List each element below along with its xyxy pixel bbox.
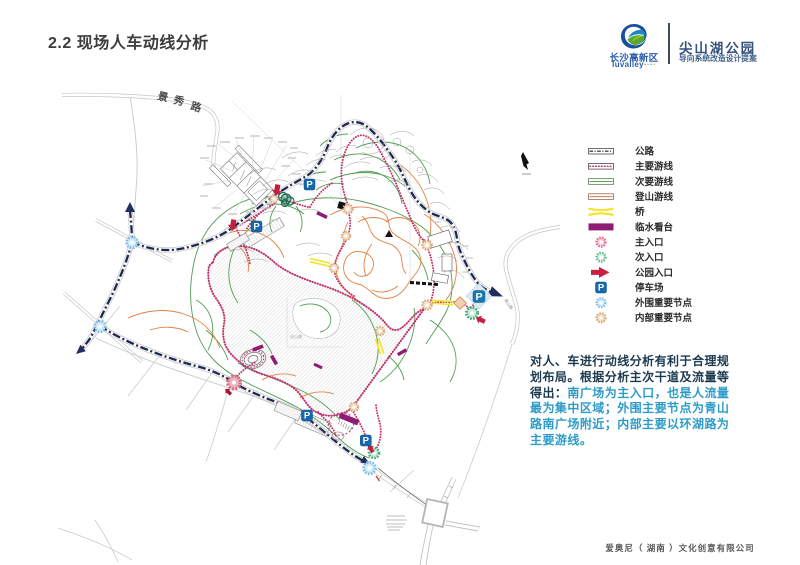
svg-text:主入口: 主入口 xyxy=(635,237,664,249)
svg-text:内部重要节点: 内部重要节点 xyxy=(635,312,693,324)
svg-text:外围重要节点: 外围重要节点 xyxy=(634,297,693,309)
svg-text:P: P xyxy=(598,283,605,294)
svg-text:P: P xyxy=(304,411,311,422)
svg-text:P: P xyxy=(306,180,313,191)
svg-text:秀: 秀 xyxy=(171,93,186,109)
svg-text:次要游线: 次要游线 xyxy=(635,176,674,188)
svg-text:公园入口: 公园入口 xyxy=(635,268,673,279)
svg-text:登山游线: 登山游线 xyxy=(634,191,674,203)
svg-text:公路: 公路 xyxy=(635,146,655,158)
svg-text:主要游线: 主要游线 xyxy=(635,161,674,173)
svg-text:P: P xyxy=(363,436,370,447)
svg-text:停车场: 停车场 xyxy=(635,282,664,294)
svg-text:路: 路 xyxy=(189,99,203,115)
svg-text:临水看台: 临水看台 xyxy=(635,221,674,233)
svg-text:P: P xyxy=(475,291,482,303)
svg-text:桥: 桥 xyxy=(635,206,645,218)
svg-text:次入口: 次入口 xyxy=(635,252,664,264)
svg-text:P: P xyxy=(253,222,260,233)
svg-text:景: 景 xyxy=(155,89,170,105)
svg-text:尖山湖: 尖山湖 xyxy=(290,333,302,339)
